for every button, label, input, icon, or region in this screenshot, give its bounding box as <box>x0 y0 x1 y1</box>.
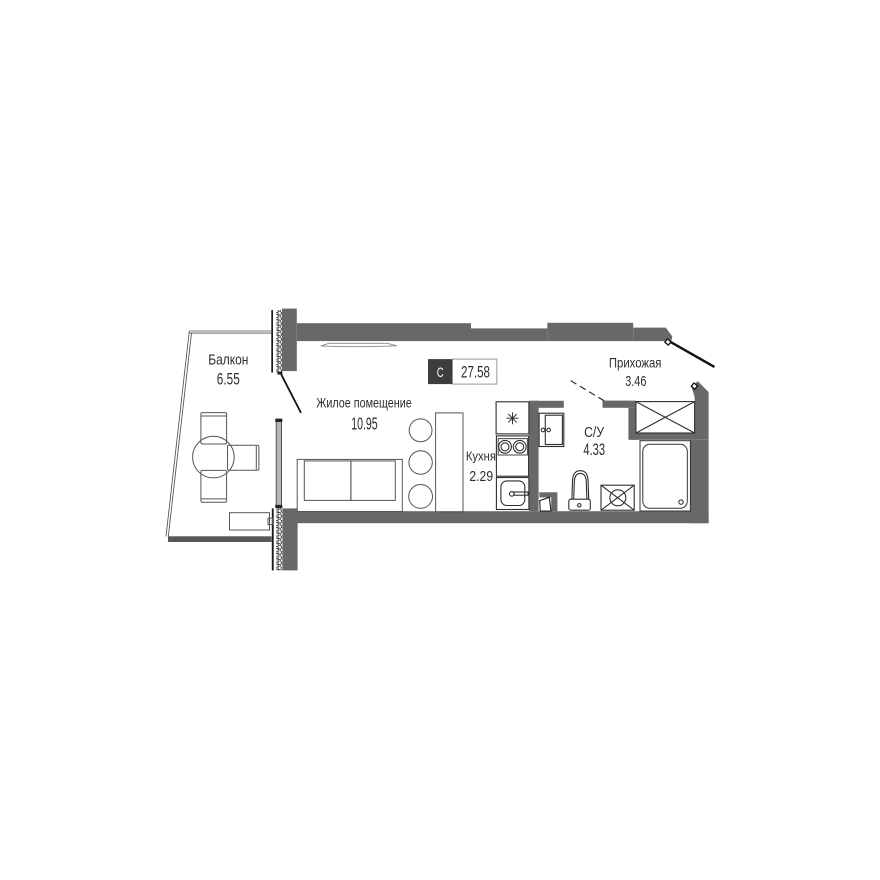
svg-text:10.95: 10.95 <box>351 414 378 434</box>
svg-text:Балкон: Балкон <box>208 353 248 369</box>
svg-text:Прихожая: Прихожая <box>609 354 662 370</box>
svg-text:С: С <box>437 364 444 380</box>
svg-text:2.29: 2.29 <box>469 468 493 485</box>
svg-text:6.55: 6.55 <box>217 370 240 388</box>
svg-text:С/У: С/У <box>584 424 604 441</box>
svg-text:Кухня: Кухня <box>466 449 496 464</box>
svg-text:27.58: 27.58 <box>461 363 490 381</box>
svg-text:4.33: 4.33 <box>583 440 605 459</box>
svg-text:Жилое помещение: Жилое помещение <box>316 395 412 411</box>
svg-text:3.46: 3.46 <box>625 373 646 390</box>
